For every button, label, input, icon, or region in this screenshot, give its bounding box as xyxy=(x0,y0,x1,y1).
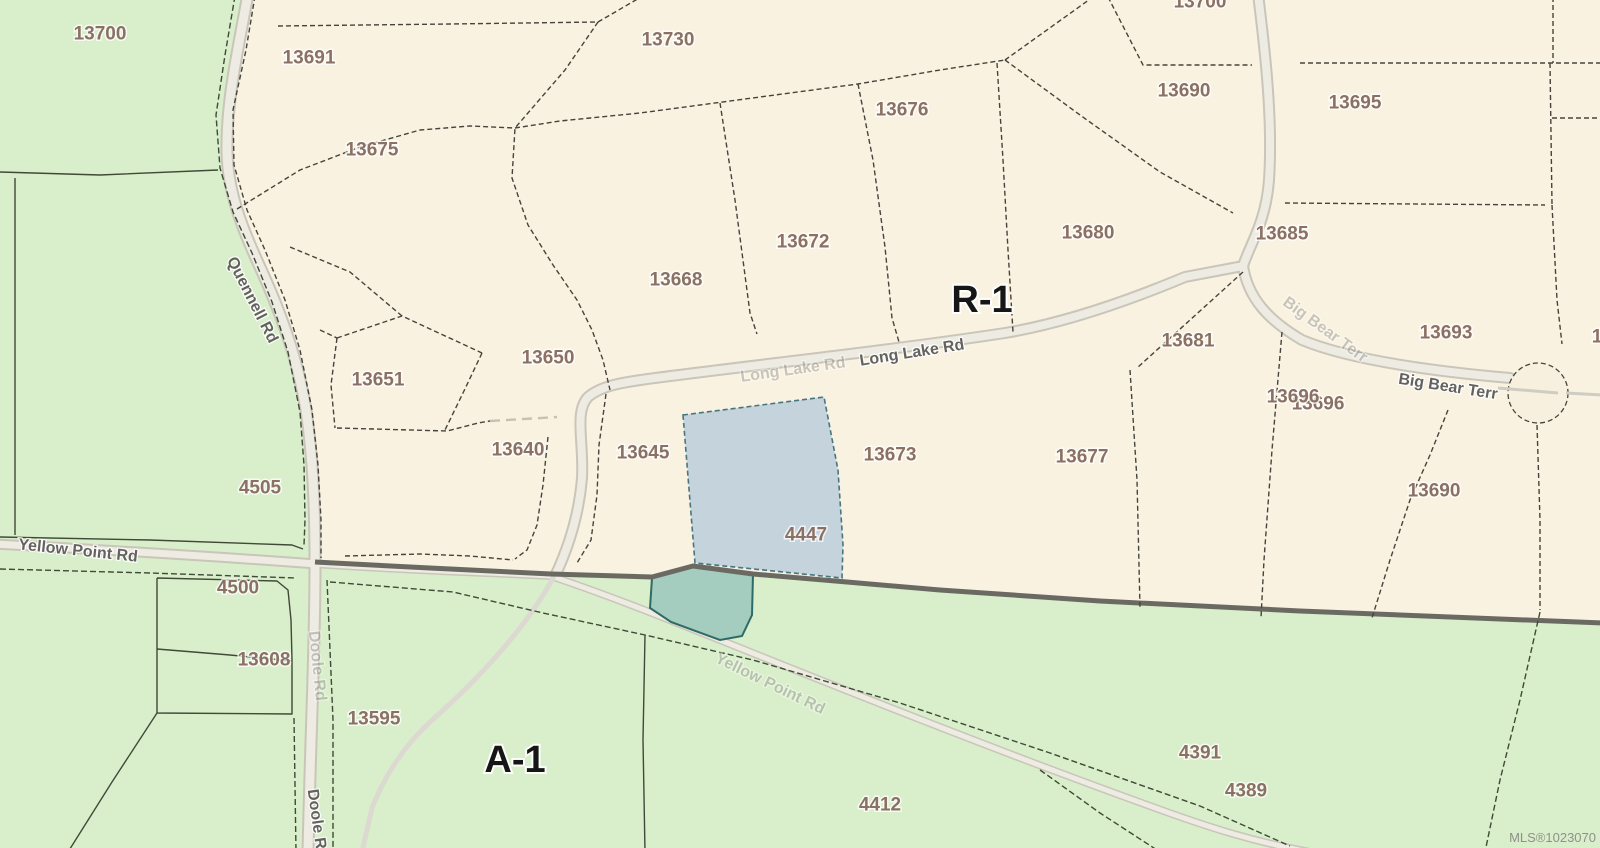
parcel-label-1-23: 1 xyxy=(1592,327,1600,348)
parcel-label-13700-1: 13700 xyxy=(1174,0,1227,13)
parcel-label-4391-30: 4391 xyxy=(1179,743,1222,764)
mls-watermark: MLS®1023070 xyxy=(1509,830,1596,845)
parcel-label-13676-4: 13676 xyxy=(876,100,929,121)
subject-parcel-highlight-4447 xyxy=(683,397,843,578)
parcel-label-13695-6: 13695 xyxy=(1329,93,1382,114)
parcel-map-page: 1370013700136911373013676136901369513675… xyxy=(0,0,1600,848)
parcel-label-13680-9: 13680 xyxy=(1062,223,1115,244)
zone-label-a-1: A-1 xyxy=(484,739,545,781)
parcel-label-13640-17: 13640 xyxy=(492,440,545,461)
parcel-label-4500-26: 4500 xyxy=(217,578,259,599)
parcel-label-13696-22: 13696 xyxy=(1267,387,1320,408)
parcel-label-13608-27: 13608 xyxy=(238,650,291,671)
parcel-label-13681-15: 13681 xyxy=(1162,331,1215,352)
parcel-label-4389-31: 4389 xyxy=(1225,781,1267,802)
parcel-label-4412-29: 4412 xyxy=(859,795,901,816)
boundary-east-spur xyxy=(1566,393,1600,395)
parcel-label-13651-13: 13651 xyxy=(352,370,405,391)
parcel-label-13693-14: 13693 xyxy=(1420,323,1473,344)
parcel-label-13673-19: 13673 xyxy=(864,445,917,466)
parcel-label-13595-28: 13595 xyxy=(348,709,401,730)
parcel-label-13691-2: 13691 xyxy=(283,48,336,69)
zone-label-r-1: R-1 xyxy=(951,279,1012,321)
parcel-label-13668-11: 13668 xyxy=(650,270,703,291)
parcel-label-13675-7: 13675 xyxy=(346,140,399,161)
parcel-label-13690-5: 13690 xyxy=(1158,81,1211,102)
parcel-label-4505-24: 4505 xyxy=(239,478,282,499)
cul-de-sac-big-bear-terr xyxy=(1508,363,1568,423)
parcel-label-13730-3: 13730 xyxy=(642,30,695,51)
parcel-label-13685-10: 13685 xyxy=(1256,224,1309,245)
parcel-label-13650-12: 13650 xyxy=(522,348,575,369)
parcel-map-canvas: 1370013700136911373013676136901369513675… xyxy=(0,0,1600,848)
parcel-label-13677-20: 13677 xyxy=(1056,447,1109,468)
parcel-label-4447-25: 4447 xyxy=(785,525,827,546)
parcel-label-13700-0: 13700 xyxy=(74,24,127,45)
parcel-label-13690-21: 13690 xyxy=(1408,481,1461,502)
parcel-label-13672-8: 13672 xyxy=(777,232,830,253)
parcel-label-13645-18: 13645 xyxy=(617,443,670,464)
